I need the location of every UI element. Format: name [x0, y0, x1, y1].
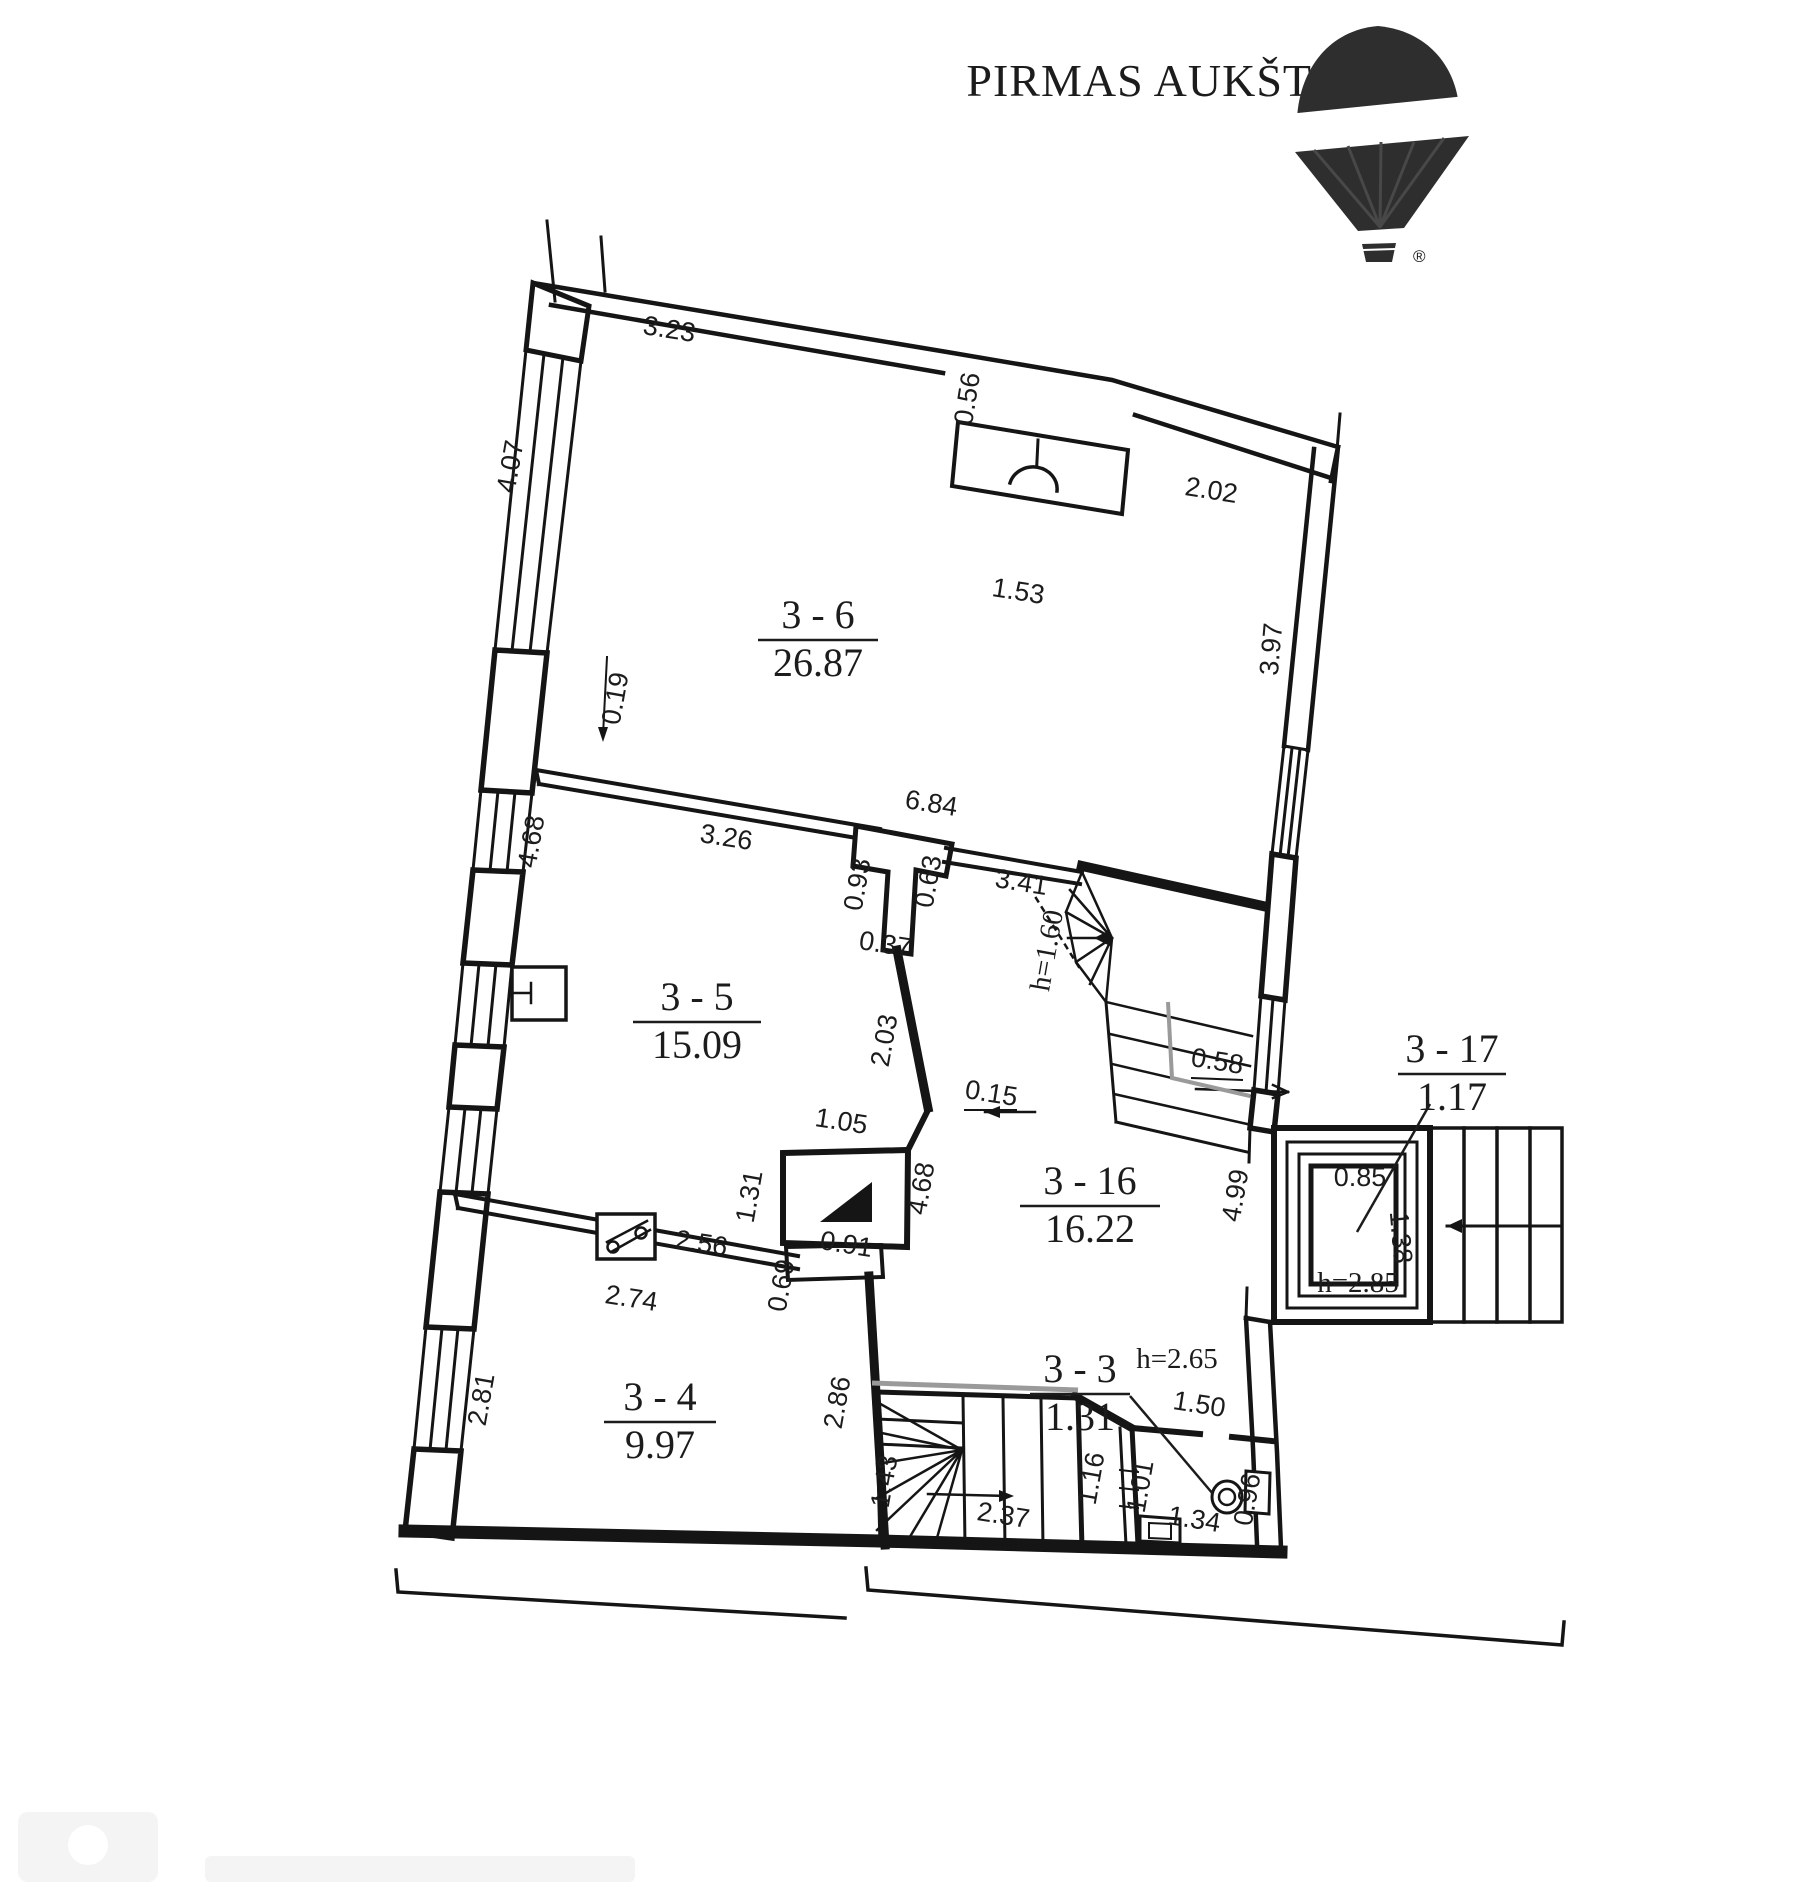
faint-watermark [18, 1812, 635, 1882]
dimension-label: h=1.60 [1024, 907, 1070, 993]
room-label: 3 - 49.97 [604, 1374, 716, 1467]
dimension-label: 6.84 [903, 784, 960, 822]
dimension-label: 1.31 [730, 1168, 769, 1225]
dimension-label: 3.23 [641, 310, 698, 348]
room-number: 3 - 16 [1043, 1158, 1136, 1203]
dimension-label: 3.97 [1254, 622, 1288, 677]
dimension-label: 1.38 [1384, 1210, 1418, 1265]
dimension-label: 3.26 [698, 818, 755, 856]
room-area: 26.87 [773, 640, 863, 685]
floor-plan-page: PIRMAS AUKŠT RE/MAX ® 3.230.561.532.024.… [0, 0, 1808, 1900]
dimension-labels: 3.230.561.532.024.073.970.193.266.840.93… [462, 310, 1418, 1538]
registered-trademark: ® [1413, 247, 1426, 266]
dimension-label: 2.86 [818, 1374, 857, 1431]
dimension-label: 2.56 [673, 1224, 730, 1262]
room-area: 1.17 [1417, 1074, 1487, 1119]
dimension-label: 0.19 [596, 670, 635, 727]
entrance-direction-arrow [1447, 1219, 1462, 1233]
dimension-label: 1.43 [865, 1453, 904, 1510]
dimension-label: 0.96 [1228, 1471, 1267, 1528]
dimension-label: 3.41 [993, 863, 1050, 901]
exterior-stairs [1430, 1128, 1562, 1322]
room-labels: 3 - 626.873 - 515.093 - 1616.223 - 49.97… [604, 592, 1506, 1494]
dimension-label: 4.99 [1216, 1167, 1255, 1224]
dimension-label: 1.05 [813, 1102, 870, 1140]
room-number: 3 - 17 [1405, 1026, 1498, 1071]
page-title: PIRMAS AUKŠT [966, 55, 1312, 106]
remax-logo: RE/MAX ® [1288, 26, 1471, 266]
room-number: 3 - 6 [781, 592, 854, 637]
dimension-label: 1.01 [1121, 1458, 1160, 1515]
room-number: 3 - 3 [1043, 1346, 1116, 1391]
dimension-label: 0.85 [1334, 1162, 1387, 1192]
room-label: 3 - 515.09 [633, 974, 761, 1067]
room-area: 1.31 [1045, 1394, 1115, 1439]
dimension-label: 4.07 [491, 438, 530, 495]
room-label: 3 - 1616.22 [1020, 1158, 1160, 1251]
room-number: 3 - 4 [623, 1374, 696, 1419]
building-walls [396, 221, 1564, 1645]
dimension-label: h=2.65 [1136, 1343, 1218, 1375]
room-number: 3 - 5 [660, 974, 733, 1019]
room-area: 9.97 [625, 1422, 695, 1467]
dimension-label: 2.37 [975, 1496, 1032, 1534]
dimension-label: 4.68 [512, 813, 551, 870]
room-area: 16.22 [1045, 1206, 1135, 1251]
dimension-label: 0.56 [948, 370, 986, 427]
dimension-label: 2.03 [865, 1012, 904, 1069]
hot-air-balloon-icon [1288, 26, 1471, 262]
dimension-label: h=2.85 [1317, 1267, 1399, 1299]
dimension-label: 1.50 [1171, 1385, 1228, 1423]
dimension-label: 0.93 [838, 856, 877, 913]
room-label: 3 - 626.87 [758, 592, 878, 685]
dimension-label: 2.74 [603, 1279, 660, 1317]
dimension-label: 1.53 [990, 572, 1047, 610]
dimension-label: 2.02 [1183, 471, 1240, 509]
room-area: 15.09 [652, 1022, 742, 1067]
dimension-label: 0.15 [963, 1074, 1020, 1112]
dimension-label: 0.58 [1189, 1042, 1246, 1080]
